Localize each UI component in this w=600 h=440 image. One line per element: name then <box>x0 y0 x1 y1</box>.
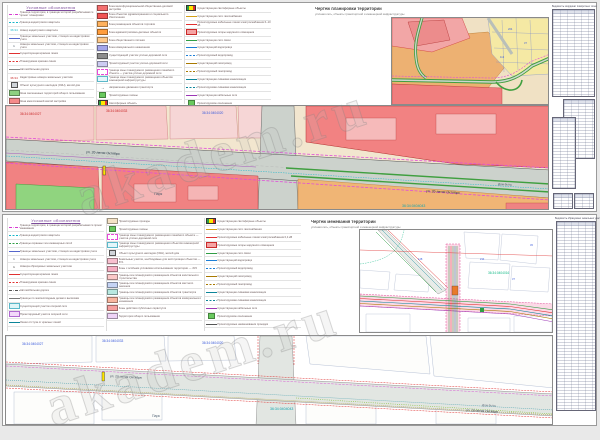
svg-text:36:34:0404027: 36:34:0404027 <box>20 112 41 116</box>
legend-symbol-f-icon <box>8 98 20 104</box>
svg-text:36:34:0404033: 36:34:0404033 <box>106 109 127 113</box>
legend-swatch <box>186 5 196 11</box>
legend-symbol-bd-icon <box>97 69 109 75</box>
legend-symbol-bx-icon <box>205 242 217 248</box>
svg-text:36:34:0404033: 36:34:0404033 <box>102 339 123 343</box>
svg-text:36:34:0404016: 36:34:0404016 <box>488 271 509 275</box>
legend-swatch <box>107 297 118 303</box>
legend-label: Проектируемый газопровод <box>217 283 252 286</box>
legend-top: Условные обозначения Граница территории,… <box>7 5 271 104</box>
legend-label: Зона коммунального назначения <box>109 46 150 49</box>
legend-symbol-f-icon <box>107 289 119 295</box>
legend-symbol-d-icon <box>185 55 197 56</box>
legend-symbol-bx-icon <box>97 76 109 82</box>
legend-swatch <box>9 290 20 291</box>
legend-row: Границы по землеотводным делам и выписка… <box>8 295 104 303</box>
legend-row: Проектируемые опоры наружного освещения <box>205 242 301 250</box>
legend-label: Существующие светофорные объекты <box>217 220 265 223</box>
legend-label: Проектируемый водопровод <box>217 267 252 270</box>
legend-row: Граница кадастрового квартала <box>8 232 104 240</box>
legend-row: Существующие кабельные сети <box>185 92 271 100</box>
legend-row: Существующий участок улично-дорожной сет… <box>97 52 183 60</box>
legend-label: Проектируемый водопровод <box>197 54 232 57</box>
legend-symbol-f-icon <box>97 53 109 59</box>
legend-swatch: 1 <box>13 257 15 261</box>
legend-label: Проектируемые опоры наружного освещения <box>217 244 274 247</box>
legend-label: Существующая красная линия <box>20 273 58 276</box>
legend-label: Зона размещения объектов торговли <box>109 23 155 26</box>
legend-label: Проектируемый участок опорной сети <box>20 313 68 316</box>
legend-symbol-f-icon <box>97 13 109 19</box>
legend-label: Планируемая красная линия <box>20 281 56 284</box>
legend-swatch <box>186 24 197 25</box>
legend-symbol-l-icon <box>205 229 217 230</box>
legend-row: Автомобильная дорога <box>8 287 104 295</box>
legend-symbol-f-icon <box>97 61 109 67</box>
legend-label: Граница территории, в границах которой р… <box>20 11 94 17</box>
legend-label: Проектируемая ливневая канализация <box>217 299 266 302</box>
legend-swatch <box>107 266 118 272</box>
legend-symbol-d-icon <box>8 235 20 236</box>
legend-symbol-f-icon <box>107 258 119 264</box>
legend-swatch <box>99 92 106 98</box>
legend-label: Проектируемая ливневая канализация <box>197 86 246 89</box>
legend-row: Существующая красная линия <box>8 50 94 58</box>
legend-row: Границы зон планируемого размещения объе… <box>107 289 203 297</box>
legend-swatch <box>107 242 118 248</box>
legend-row: Границы земельных участков, стоящих на к… <box>8 35 94 43</box>
svg-text:204: 204 <box>508 27 513 31</box>
legend-swatch <box>208 313 215 319</box>
legend-swatch <box>186 47 197 48</box>
legend-column-1: Условные обозначения Граница территории,… <box>7 5 94 104</box>
legend-label: Существующий газопровод <box>197 62 231 65</box>
legend-label: Граница территории, в границах которой р… <box>20 224 104 230</box>
legend-row: Проектируемые газоны <box>107 226 203 234</box>
legend-symbol-dd-icon <box>8 14 20 15</box>
legend-symbol-l-icon <box>8 298 20 299</box>
svg-text:36:34:0404020: 36:34:0404020 <box>202 341 223 345</box>
legend-symbol-bd-icon <box>107 234 119 240</box>
legend-row: Граница зоны планируемого размещения объ… <box>97 76 183 84</box>
legend-symbol-d-icon <box>205 300 217 301</box>
map-utilities: 214 37 128 45 36:34:0404016 <box>359 229 553 333</box>
legend-symbol-l-icon <box>8 69 20 70</box>
legend-row: Существующие сети газоснабжения <box>185 13 271 21</box>
scanned-plan-page: { "watermark": {"text": "akadem.ru"}, "s… <box>0 0 600 428</box>
legend-swatch: 1 <box>13 265 15 269</box>
legend-swatch <box>9 274 20 275</box>
legend-swatch <box>107 313 118 319</box>
legend-swatch <box>206 276 217 277</box>
legend-label: Зона озелененных территорий общего польз… <box>20 92 85 95</box>
legend-symbol-d-icon <box>185 87 197 88</box>
legend-symbol-bx-icon <box>185 29 197 35</box>
legend-label: Зоны с особыми условиями использования т… <box>119 267 197 270</box>
legend-symbol-f-icon <box>97 21 109 27</box>
legend-row: Граница территории, в границах которой р… <box>8 224 104 232</box>
legend-label: Существующие сети газоснабжения <box>197 15 242 18</box>
legend-label: Линии отступа от красных линий <box>20 321 61 324</box>
legend-row: Зона административно-деловых объектов <box>97 29 183 37</box>
legend-symbol-fs-icon <box>107 226 119 232</box>
legend-row: Существующий газопровод <box>205 273 301 281</box>
legend-swatch <box>206 253 217 254</box>
legend-swatch <box>9 14 20 15</box>
legend-swatch: 36:34 <box>10 28 18 32</box>
legend-symbol-f-icon <box>107 282 119 288</box>
legend-row: Проектируемые кабельные линии электросна… <box>185 21 271 29</box>
legend-swatch <box>109 226 116 232</box>
legend-row: Проектируемая ливневая канализация <box>185 84 271 92</box>
legend-swatch <box>186 79 197 80</box>
legend-symbol-f-icon <box>97 5 109 11</box>
legend-label: Граница зоны планируемого размещения объ… <box>109 76 183 82</box>
legend-label: Зона объектов здравоохранения и социальн… <box>109 13 183 19</box>
legend-row: Существующие светофорные объекты <box>205 218 301 226</box>
legend-swatch <box>206 229 217 230</box>
legend-row: Проектируемый газопровод <box>185 68 271 76</box>
legend-label: Границы зон планируемого размещения объе… <box>119 274 203 280</box>
svg-text:Дом быта: Дом быта <box>482 403 496 408</box>
legend-label: Проектируемые проезды <box>119 220 150 223</box>
legend-swatch <box>186 16 197 17</box>
map-intersection-top: 204 37 112 <box>391 17 549 105</box>
legend-swatch <box>9 69 20 70</box>
legend-row: Проектируемый участок улично-дорожной се… <box>97 60 183 68</box>
legend-label: Проектируемые кабельные линии электросна… <box>197 21 271 27</box>
map-title-block: Чертеж межевания территории уличная сеть… <box>311 219 531 229</box>
legend-row: Границы зон планируемого размещения объе… <box>107 281 203 289</box>
legend-symbol-f-icon <box>107 274 119 280</box>
legend-symbol-l-icon <box>205 276 217 277</box>
legend-label: Зоны действия публичных сервитутов <box>119 307 167 310</box>
map-main-bottom: 36:34:0404027 36:34:0404033 36:34:040402… <box>5 335 553 425</box>
legend-label: Проектируемые кабельные линии электросна… <box>217 236 292 239</box>
legend-label: Границы земельных участков, стоящих на к… <box>20 35 94 41</box>
legend-row: Объект культурного наследия (ОКН), жилой… <box>107 250 203 258</box>
legend-swatch <box>206 237 217 238</box>
legend-row: Зоны действия публичных сервитутов <box>107 305 203 313</box>
legend-swatch <box>206 292 217 293</box>
legend-swatch <box>97 13 108 19</box>
legend-label: Существующая красная линия <box>20 52 58 55</box>
legend-row: →Направление движения транспорта <box>97 84 183 92</box>
table-caption: Ведомость образуемых земельных участков <box>555 217 600 220</box>
legend-label: Границы по землеотводным делам и выписка… <box>20 297 79 300</box>
legend-label: Существующая ливневая канализация <box>217 291 266 294</box>
legend-swatch <box>186 29 197 35</box>
legend-row: Проектируемый водопровод <box>205 265 301 273</box>
legend-row: Проектируемый водопровод <box>185 52 271 60</box>
legend-swatch <box>97 76 108 82</box>
legend-label: Существующие сети связи <box>217 252 250 255</box>
coords-table-5 <box>574 193 594 209</box>
legend-swatch <box>97 21 108 27</box>
legend-symbol-bx-icon <box>8 303 20 309</box>
legend-symbol-d-icon <box>8 243 20 244</box>
sheet-planning-drawing: Условные обозначения Граница территории,… <box>2 2 597 212</box>
map-title: Чертеж межевания территории <box>311 219 531 224</box>
legend-label: Кадастровые номера земельных участков <box>20 76 73 79</box>
legend-symbol-fl-icon <box>205 218 217 224</box>
legend-label: Проектируемые опоры наружного освещения <box>197 31 254 34</box>
legend-row: Существующий газопровод <box>185 60 271 68</box>
legend-swatch <box>97 45 108 51</box>
legend-swatch <box>107 289 118 295</box>
legend-row: Существующие сети связи <box>185 37 271 45</box>
coords-table-4 <box>553 193 573 209</box>
legend-row: Земельные участки, необходимые для экспл… <box>107 257 203 265</box>
legend-symbol-d-icon <box>8 282 20 283</box>
coordinate-tables: Ведомость координат поворотных точек <box>551 5 595 210</box>
legend-row: Существующие кабельные сети <box>205 305 301 313</box>
legend-swatch <box>9 322 20 323</box>
legend-swatch <box>97 61 108 67</box>
legend-row: Проектируемый участок опорной сети <box>8 311 104 319</box>
legend-label: Зона общественного питания <box>109 39 146 42</box>
legend-label: Граница зоны планируемого размещения объ… <box>119 242 203 248</box>
legend-symbol-d-icon <box>185 71 197 72</box>
legend-symbol-ar-icon: → <box>97 85 109 90</box>
legend-swatch <box>9 61 20 62</box>
svg-text:36:34:0404020: 36:34:0404020 <box>202 111 223 115</box>
legend-row: Существующая ливневая канализация <box>205 289 301 297</box>
legend-swatch <box>206 242 217 248</box>
legend-label: Направление движения транспорта <box>109 86 154 89</box>
legend-swatch <box>9 98 20 104</box>
legend-symbol-dd-icon <box>8 290 20 291</box>
svg-text:Парк: Парк <box>154 192 163 196</box>
legend-bottom: Условные обозначения Граница территории,… <box>7 218 301 331</box>
legend-label: Граница кадастрового квартала <box>20 234 60 237</box>
legend-swatch <box>9 303 20 309</box>
legend-symbol-f-icon <box>97 37 109 43</box>
legend-row: Граница зоны планируемого размещения лин… <box>97 68 183 76</box>
legend-symbol-d-icon <box>8 22 20 23</box>
legend-label: Проектируемые наименования проездов <box>217 323 268 326</box>
legend-label: Существующий водопровод <box>197 46 232 49</box>
legend-row: Проектируемое озеленение <box>205 313 301 321</box>
legend-label: Граница кадастрового квартала <box>20 21 60 24</box>
legend-row: Планируемая красная линия <box>8 279 104 287</box>
legend-row: Линии отступа от красных линий <box>8 319 104 327</box>
legend-symbol-fs-icon <box>97 92 109 98</box>
legend-symbol-tx-icon: 1 <box>8 257 20 261</box>
legend-label: Номера земельных участков, стоящих на ка… <box>20 43 94 49</box>
legend-row: Граница территории, в границах которой р… <box>8 11 94 19</box>
legend-row: Проектируемый газопровод <box>205 281 301 289</box>
legend-row: Границы зон планируемого размещения объе… <box>107 273 203 281</box>
legend-label: Зона административно-деловых объектов <box>109 31 162 34</box>
legend-row: Существующая ливневая канализация <box>185 76 271 84</box>
legend-symbol-l-icon <box>185 79 197 80</box>
legend-swatch <box>97 69 108 75</box>
legend-symbol-l-icon <box>8 53 20 54</box>
map-title-block: Чертеж планировки территории уличная сет… <box>315 6 515 16</box>
legend-row: Зона размещения объектов торговли <box>97 21 183 29</box>
legend-symbol-l-icon <box>205 308 217 309</box>
legend-row: Граница кадастрового квартала <box>8 19 94 27</box>
legend-row: Проектируемые опоры наружного освещения <box>185 29 271 37</box>
legend-label: Границы зон планируемого размещения объе… <box>119 282 203 288</box>
legend-swatch <box>109 250 116 256</box>
legend-swatch <box>9 282 20 283</box>
legend-label: Номер кадастрового квартала <box>20 29 58 32</box>
legend-label: Объект культурного наследия (ОКН), жилой… <box>119 252 179 255</box>
legend-swatch <box>9 251 20 252</box>
legend-label: Зона многофункциональной общественно-дел… <box>109 5 183 11</box>
legend-row: Планируемая красная линия <box>8 58 94 66</box>
legend-label: Проектируемое озеленение <box>217 315 252 318</box>
legend-row: Существующая красная линия <box>8 271 104 279</box>
legend-row: Территории общего пользования <box>107 313 203 321</box>
svg-text:112: 112 <box>500 55 505 59</box>
legend-symbol-fs-icon <box>205 313 217 319</box>
legend-swatch <box>206 268 217 269</box>
legend-label: Объект культурного наследия (ОКН), жилой… <box>20 84 80 87</box>
legend-swatch <box>97 29 108 35</box>
legend-label: Номера земельных участков, стоящих на ка… <box>20 258 96 261</box>
legend-row: Проектируемые проезды <box>107 218 203 226</box>
svg-text:214: 214 <box>480 257 485 261</box>
legend-symbol-dd-icon <box>8 227 20 228</box>
legend-swatch <box>206 308 217 309</box>
legend-symbol-l-icon <box>205 260 217 261</box>
legend-symbol-tx-icon: 1 <box>8 44 20 48</box>
legend-label: Границы охранных зон инженерных сетей <box>20 242 72 245</box>
legend-symbol-l-icon <box>8 322 20 323</box>
legend-symbol-f-icon <box>107 313 119 319</box>
legend-symbol-tx-icon: 36:34 <box>8 76 20 80</box>
legend-symbol-l-icon <box>185 47 197 48</box>
legend-symbol-f-icon <box>107 297 119 303</box>
legend-symbol-ic-icon <box>107 250 119 256</box>
legend-row: Объект культурного наследия (ОКН), жилой… <box>8 82 94 90</box>
legend-column-1: Условные обозначения Граница территории,… <box>7 218 104 331</box>
legend-symbol-tx-icon: 36:34 <box>8 28 20 32</box>
sheet-surveying-drawing: Условные обозначения Граница территории,… <box>2 214 597 426</box>
legend-swatch <box>186 71 197 72</box>
legend-symbol-l-icon <box>185 40 197 41</box>
legend-symbol-l-icon <box>185 24 197 25</box>
legend-symbol-l-icon <box>205 253 217 254</box>
legend-row: 1Номера земельных участков, стоящих на к… <box>8 43 94 51</box>
legend-symbol-l-icon <box>205 324 217 325</box>
legend-swatch <box>206 260 217 261</box>
svg-text:128: 128 <box>418 257 423 261</box>
legend-label: Граница зоны планируемого размещения лин… <box>119 234 203 240</box>
legend-row: Зона многофункциональной общественно-дел… <box>97 5 183 13</box>
legend-symbol-ic-icon <box>8 82 20 88</box>
legend-swatch: 36:34 <box>10 76 18 80</box>
legend-label: Номера образуемых земельных участков <box>20 265 72 268</box>
svg-text:36:34:0404043: 36:34:0404043 <box>402 204 425 208</box>
coords-table-1 <box>552 9 595 97</box>
legend-swatch <box>9 235 20 236</box>
legend-label: Существующие сети газоснабжения <box>217 228 262 231</box>
legend-symbol-f-icon <box>97 29 109 35</box>
legend-symbol-f-icon <box>8 90 20 96</box>
legend-swatch <box>107 305 118 311</box>
legend-row: Зоны с особыми условиями использования т… <box>107 265 203 273</box>
svg-text:Парк: Парк <box>152 414 160 418</box>
legend-row: Проектируемые кабельные линии электросна… <box>205 234 301 242</box>
legend-swatch <box>9 38 20 39</box>
legend-label: Существующие кабельные сети <box>217 307 257 310</box>
legend-label: Проектируемый участок улично-дорожной се… <box>109 62 168 65</box>
legend-symbol-l-icon <box>205 237 217 238</box>
legend-row: Граница зоны планируемого размещения объ… <box>107 242 203 250</box>
legend-row: Зона объектов здравоохранения и социальн… <box>97 13 183 21</box>
legend-symbol-bx-icon <box>107 242 119 248</box>
map-subtitle: уличная сеть, объекты транспортной и инж… <box>315 12 515 16</box>
legend-row: Автомобильная дорога <box>8 66 94 74</box>
legend-swatch <box>206 324 217 325</box>
legend-row: Существующие сети газоснабжения <box>205 226 301 234</box>
legend-symbol-l-icon <box>185 16 197 17</box>
legend-swatch: 1 <box>13 44 15 48</box>
legend-row: 1Номера образуемых земельных участков <box>8 263 104 271</box>
legend-symbol-l-icon <box>205 292 217 293</box>
legend-row: Существующий водопровод <box>205 257 301 265</box>
legend-row: Существующий водопровод <box>185 44 271 52</box>
legend-swatch <box>186 95 197 96</box>
legend-row: Зона общественного питания <box>97 37 183 45</box>
legend-swatch <box>9 298 20 299</box>
legend-swatch <box>11 82 18 88</box>
legend-symbol-d-icon <box>205 284 217 285</box>
legend-row: 36:34Номер кадастрового квартала <box>8 27 94 35</box>
legend-row: Проектируемые газоны <box>97 92 183 100</box>
legend-symbol-fl-icon <box>185 5 197 11</box>
legend-symbol-l-icon <box>185 63 197 64</box>
legend-label: Планируемая красная линия <box>20 60 56 63</box>
coords-table-3 <box>552 117 576 189</box>
legend-label: Границы зон планируемого размещения объе… <box>119 291 196 294</box>
legend-row: Проектируемая ливневая канализация <box>205 297 301 305</box>
legend-swatch <box>9 53 20 54</box>
legend-symbol-d-icon <box>8 61 20 62</box>
legend-label: Автомобильная дорога <box>20 289 49 292</box>
legend-swatch <box>206 300 217 301</box>
legend-symbol-l-icon <box>8 251 20 252</box>
legend-symbol-f-icon <box>107 218 119 224</box>
legend-swatch <box>107 282 118 288</box>
legend-label: Существующая ливневая канализация <box>197 78 246 81</box>
legend-row: Существующие сети связи <box>205 250 301 258</box>
legend-symbol-tx-icon: 1 <box>8 265 20 269</box>
legend-row: Зона коммунального назначения <box>97 44 183 52</box>
legend-label: Существующие светофорные объекты <box>197 7 245 10</box>
legend-label: Существующий участок улично-дорожной сет… <box>109 54 168 57</box>
svg-text:36:34:0404043: 36:34:0404043 <box>270 407 293 411</box>
legend-label: Территории общего пользования <box>119 315 160 318</box>
svg-text:36:34:0404027: 36:34:0404027 <box>22 342 43 346</box>
legend-label: Существующий водопровод <box>217 259 252 262</box>
legend-row: 1Номера земельных участков, стоящих на к… <box>8 256 104 264</box>
legend-label: Зона многоэтажной жилой застройки <box>20 100 66 103</box>
legend-swatch <box>9 227 20 228</box>
legend-label: Земельные участки, необходимые для экспл… <box>119 258 203 264</box>
legend-row: Границы охранных зон инженерных сетей <box>8 240 104 248</box>
legend-symbol-f-icon <box>97 45 109 51</box>
legend-label: Автомобильная дорога <box>20 68 49 71</box>
legend-swatch: → <box>101 85 105 90</box>
legend-label: Проектируемый газопровод <box>197 70 232 73</box>
legend-row: 36:34Кадастровые номера земельных участк… <box>8 74 94 82</box>
legend-swatch <box>206 218 216 224</box>
